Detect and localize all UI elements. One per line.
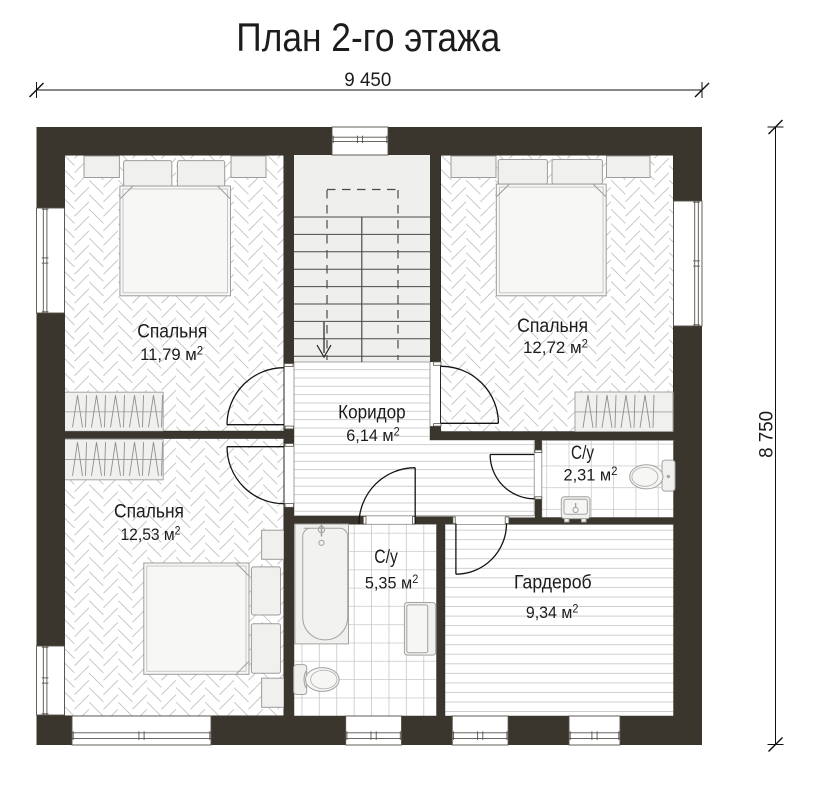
- svg-text:11,79 м2: 11,79 м2: [140, 345, 203, 364]
- svg-text:8 750: 8 750: [757, 411, 778, 458]
- svg-text:12,72 м2: 12,72 м2: [523, 338, 588, 357]
- svg-text:5,35 м2: 5,35 м2: [365, 573, 419, 592]
- svg-text:Гардероб: Гардероб: [514, 572, 592, 594]
- svg-text:9,34 м2: 9,34 м2: [526, 603, 579, 622]
- svg-text:2,31 м2: 2,31 м2: [564, 466, 618, 485]
- svg-text:12,53 м2: 12,53 м2: [121, 525, 181, 544]
- svg-text:6,14 м2: 6,14 м2: [346, 426, 400, 445]
- svg-text:Спальня: Спальня: [114, 501, 184, 523]
- svg-text:С/у: С/у: [374, 546, 398, 568]
- svg-text:Спальня: Спальня: [517, 315, 588, 337]
- svg-text:План 2-го этажа: План 2-го этажа: [236, 16, 501, 60]
- svg-text:Спальня: Спальня: [137, 321, 207, 343]
- svg-text:Коридор: Коридор: [338, 401, 406, 423]
- svg-text:С/у: С/у: [571, 442, 594, 464]
- svg-text:9 450: 9 450: [344, 70, 391, 91]
